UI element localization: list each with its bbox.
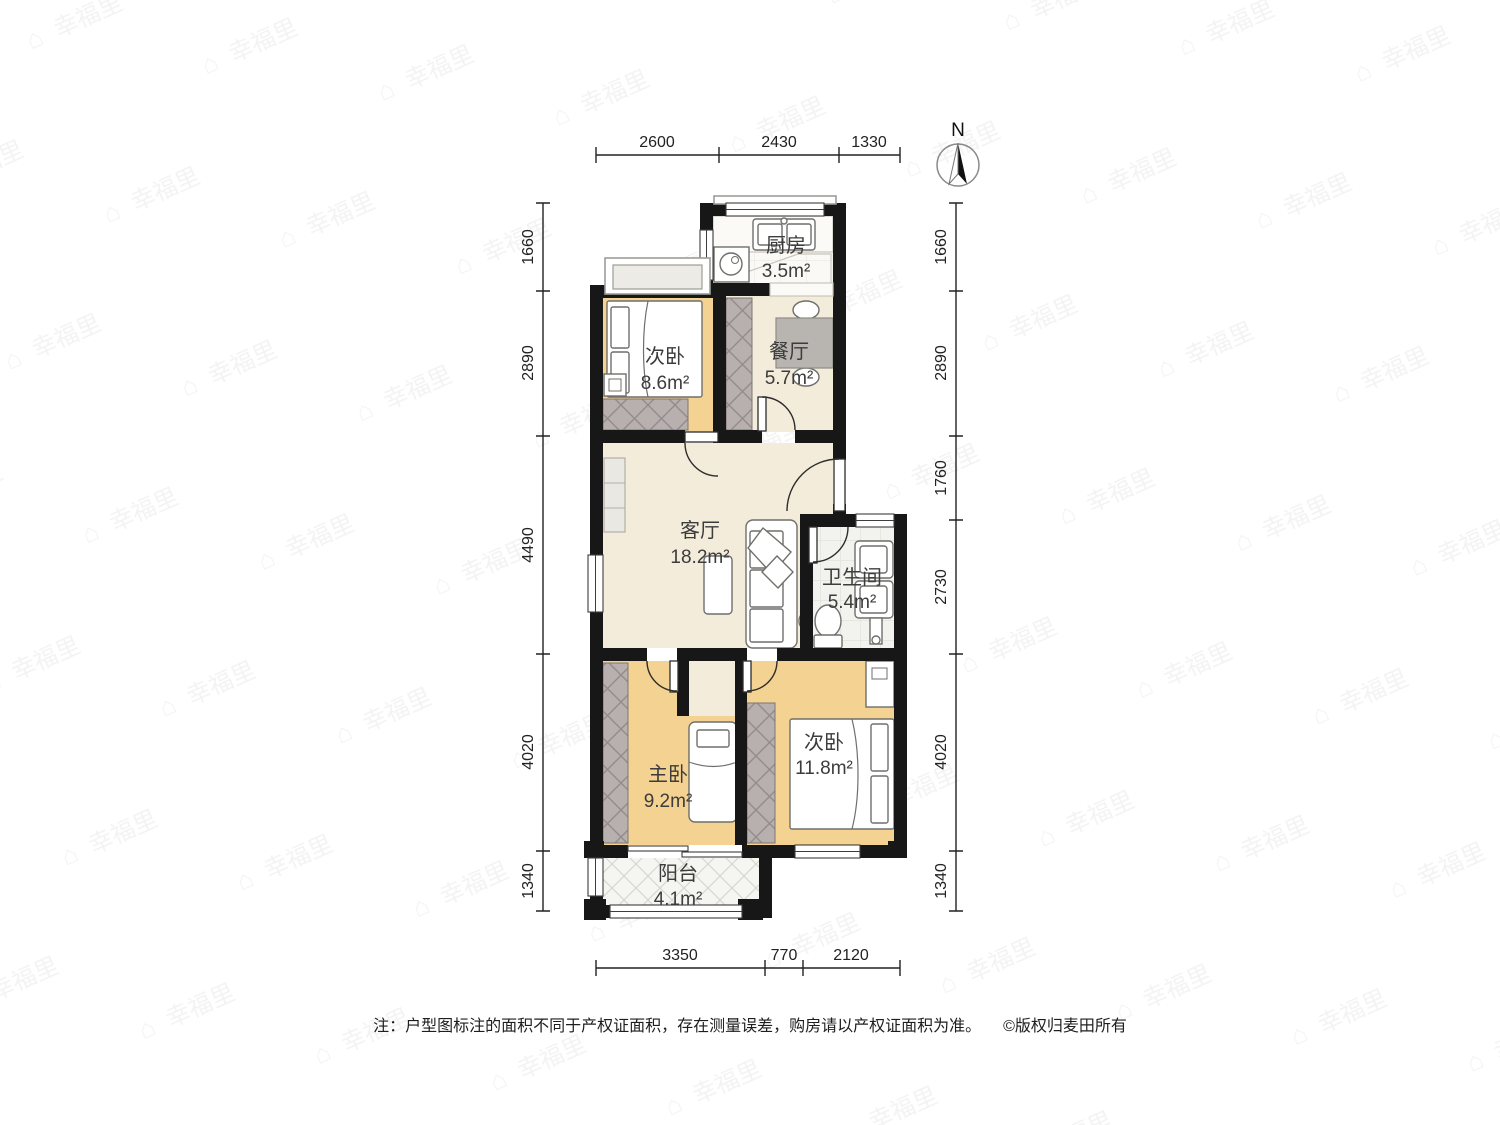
wall: [777, 648, 907, 661]
dim-left-3: 4490: [520, 527, 537, 563]
dim-right-1: 1660: [933, 229, 950, 265]
dim-right-5: 4020: [933, 734, 950, 770]
copyright-text: ©版权归麦田所有: [1003, 1018, 1127, 1035]
entry-door[interactable]: [834, 459, 845, 511]
room-label-dining: 餐厅: [769, 340, 809, 363]
pillow: [871, 776, 888, 823]
floorplan-page: { "watermark": { "icon": "⌂", "text": "幸…: [0, 0, 1500, 1125]
wall: [590, 612, 603, 648]
bedroom-bay-inner: [613, 265, 702, 289]
right-wall-lower: [894, 514, 907, 845]
corner-pillar: [584, 899, 606, 920]
dim-bottom-2: 770: [771, 947, 798, 964]
dim-top-2: 2430: [761, 134, 797, 151]
room-area-kitchen: 3.5m²: [762, 261, 811, 282]
dim-top-1: 2600: [639, 134, 675, 151]
bedroom-tl-door[interactable]: [685, 432, 718, 442]
room-area-bedroom-br: 11.8m²: [795, 758, 853, 779]
left-wall-lower: [590, 648, 603, 845]
balcony-sliding-door[interactable]: [628, 846, 688, 851]
room-area-living: 18.2m²: [670, 547, 729, 568]
sofa-cushion: [750, 609, 783, 642]
master-entry-stub-wall: [677, 661, 689, 716]
wardrobe-bottom-right: [747, 703, 775, 843]
dim-left-4: 4020: [520, 734, 537, 770]
footer-note-row: 注：户型图标注的面积不同于产权证面积，存在测量误差，购房请以产权证面积为准。©版…: [0, 1012, 1500, 1036]
dim-left-2: 2890: [520, 345, 537, 381]
dim-bottom-3: 2120: [833, 947, 869, 964]
balcony-sliding-door[interactable]: [682, 852, 742, 857]
right-wall-upper: [833, 203, 846, 460]
wardrobe-master: [603, 663, 628, 843]
room-area-bedroom-tl: 8.6m²: [641, 373, 690, 394]
tv-cabinet: [604, 458, 625, 532]
wall: [590, 430, 685, 443]
dim-left-1: 1660: [520, 229, 537, 265]
wall: [800, 514, 856, 527]
room-area-bathroom: 5.4m²: [828, 592, 877, 613]
toilet-base: [814, 635, 842, 648]
bedroom-br-door[interactable]: [743, 661, 751, 692]
left-wall-upper: [590, 285, 603, 555]
dim-top-3: 1330: [851, 134, 887, 151]
bedroom-dining-wall: [713, 285, 726, 443]
room-label-bedroom-br: 次卧: [804, 731, 844, 754]
pillow: [611, 307, 629, 348]
dim-right-6: 1340: [933, 863, 950, 899]
wall: [700, 203, 726, 216]
appliance-icon: [604, 374, 626, 396]
wall: [772, 845, 795, 858]
dim-right-2: 2890: [933, 345, 950, 381]
pillow: [697, 730, 729, 747]
wall: [795, 430, 833, 443]
disclaimer-text: 注：户型图标注的面积不同于产权证面积，存在测量误差，购房请以产权证面积为准。: [373, 1018, 981, 1035]
bath-drain-icon: [872, 636, 880, 644]
compass-north-label: N: [951, 120, 965, 141]
room-label-bathroom: 卫生间: [822, 566, 882, 589]
corner-pillar: [584, 841, 604, 858]
bathroom-door[interactable]: [809, 527, 817, 563]
wardrobe-dining: [726, 298, 752, 430]
room-label-balcony: 阳台: [658, 862, 698, 885]
room-label-master: 主卧: [648, 763, 688, 786]
room-area-master: 9.2m²: [644, 791, 693, 812]
wall: [718, 430, 762, 443]
dim-left-5: 1340: [520, 863, 537, 899]
stove-burner-icon: [720, 253, 742, 275]
dim-right-3: 1760: [933, 460, 950, 496]
kitchen-pass-counter: [770, 283, 833, 296]
dining-chair: [793, 301, 819, 319]
floorplan-svg: ⌂ 幸福里 ⌂ 幸福里: [0, 0, 1500, 1125]
room-label-kitchen: 厨房: [766, 234, 806, 257]
corner-pillar: [888, 841, 907, 858]
master-entry-floor: [689, 661, 735, 716]
room-label-living: 客厅: [680, 519, 720, 542]
room-area-dining: 5.7m²: [765, 368, 814, 389]
dim-right-4: 2730: [933, 569, 950, 605]
room-area-balcony: 4.1m²: [654, 889, 703, 910]
pillow: [871, 724, 888, 771]
master-door[interactable]: [670, 661, 678, 692]
room-label-bedroom-tl: 次卧: [645, 345, 685, 368]
wardrobe-top-left: [603, 399, 688, 430]
dim-bottom-1: 3350: [662, 947, 698, 964]
kitchen-faucet-icon: [781, 218, 787, 224]
living-floor: [603, 443, 833, 648]
dining-door[interactable]: [758, 397, 766, 431]
wall: [677, 648, 747, 661]
